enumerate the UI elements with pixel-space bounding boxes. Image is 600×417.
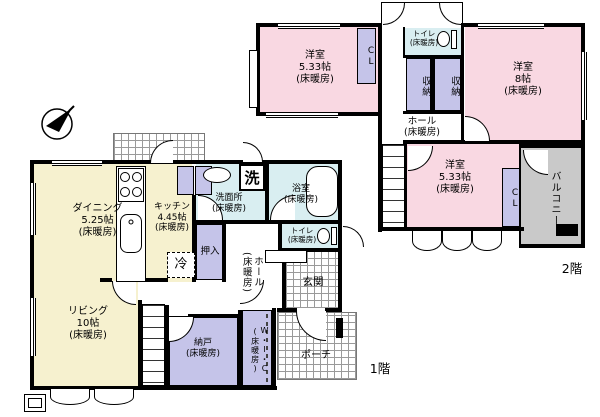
- closet-s-label: CL: [502, 176, 520, 222]
- stairs-2f: [382, 144, 406, 228]
- window: [52, 160, 102, 166]
- hall-1f-label: ホール (床暖房): [227, 233, 263, 311]
- stairs-1f: [142, 304, 165, 386]
- storage-right-label: 収納: [435, 66, 460, 106]
- window: [278, 23, 340, 29]
- genkan-step: [265, 250, 307, 263]
- floor2-label: 2階: [550, 262, 594, 277]
- balcony-label: バルコニー: [536, 152, 560, 244]
- hall-2f-label: ホール (床暖房): [385, 116, 459, 138]
- outdoor-unit-inner: [28, 398, 42, 408]
- toilet-2f-label: トイレ (床暖房): [404, 30, 444, 48]
- washer-label: 洗: [244, 169, 259, 187]
- storeroom-label: 納戸 (床暖房): [167, 338, 239, 359]
- storage-left-label: 収納: [407, 66, 431, 106]
- fridge-box: 冷: [167, 252, 195, 278]
- toilet-1f-label: トイレ (床暖房): [282, 227, 322, 245]
- bedroom-nw-label: 洋室 5.33帖 (床暖房): [262, 50, 368, 85]
- window: [581, 52, 587, 120]
- toilet-1f-tank: [331, 227, 337, 245]
- door-arc: [343, 226, 364, 247]
- window: [30, 298, 36, 356]
- floor1-label: 1階: [358, 362, 402, 377]
- washing-machine: 洗: [239, 164, 265, 191]
- window: [266, 112, 338, 118]
- porch-label: ポーチ: [288, 350, 344, 362]
- toilet-2f-tank: [451, 30, 457, 49]
- window: [478, 23, 544, 29]
- window: [30, 183, 36, 235]
- compass: [36, 100, 80, 144]
- casement-window-arc: [94, 389, 134, 405]
- casement-window-arc: [50, 389, 90, 405]
- casement-window-arc: [472, 231, 502, 251]
- closet-nw-label: CL: [357, 34, 376, 80]
- casement-window-arc: [412, 231, 442, 251]
- casement-window-arc: [442, 231, 472, 251]
- living-label: リビング 10帖 (床暖房): [38, 306, 138, 341]
- wic-label: W・I・C (床暖房): [241, 314, 269, 386]
- porch-post: [336, 318, 343, 338]
- fridge-label: 冷: [174, 257, 187, 272]
- oshiire-label: 押入: [196, 246, 224, 257]
- washroom-label: 洗面所 (床暖房): [194, 193, 264, 214]
- genkan-label: 玄関: [292, 276, 334, 288]
- compass-icon: [36, 100, 80, 144]
- door-arc: [243, 142, 263, 162]
- washroom-sink-icon: [203, 167, 231, 183]
- window-bay: [249, 50, 258, 108]
- bath-label: 浴室 (床暖房): [268, 184, 334, 205]
- kitchen-cabinet-1: [177, 166, 194, 195]
- bedroom-s-label: 洋室 5.33帖 (床暖房): [408, 160, 502, 195]
- bedroom-e-label: 洋室 8帖 (床暖房): [470, 62, 576, 97]
- floor-plan: 洗 冷 ダイニング 5.25帖 (床暖房) キッチン 4.45帖 (床暖房) リ…: [0, 0, 600, 417]
